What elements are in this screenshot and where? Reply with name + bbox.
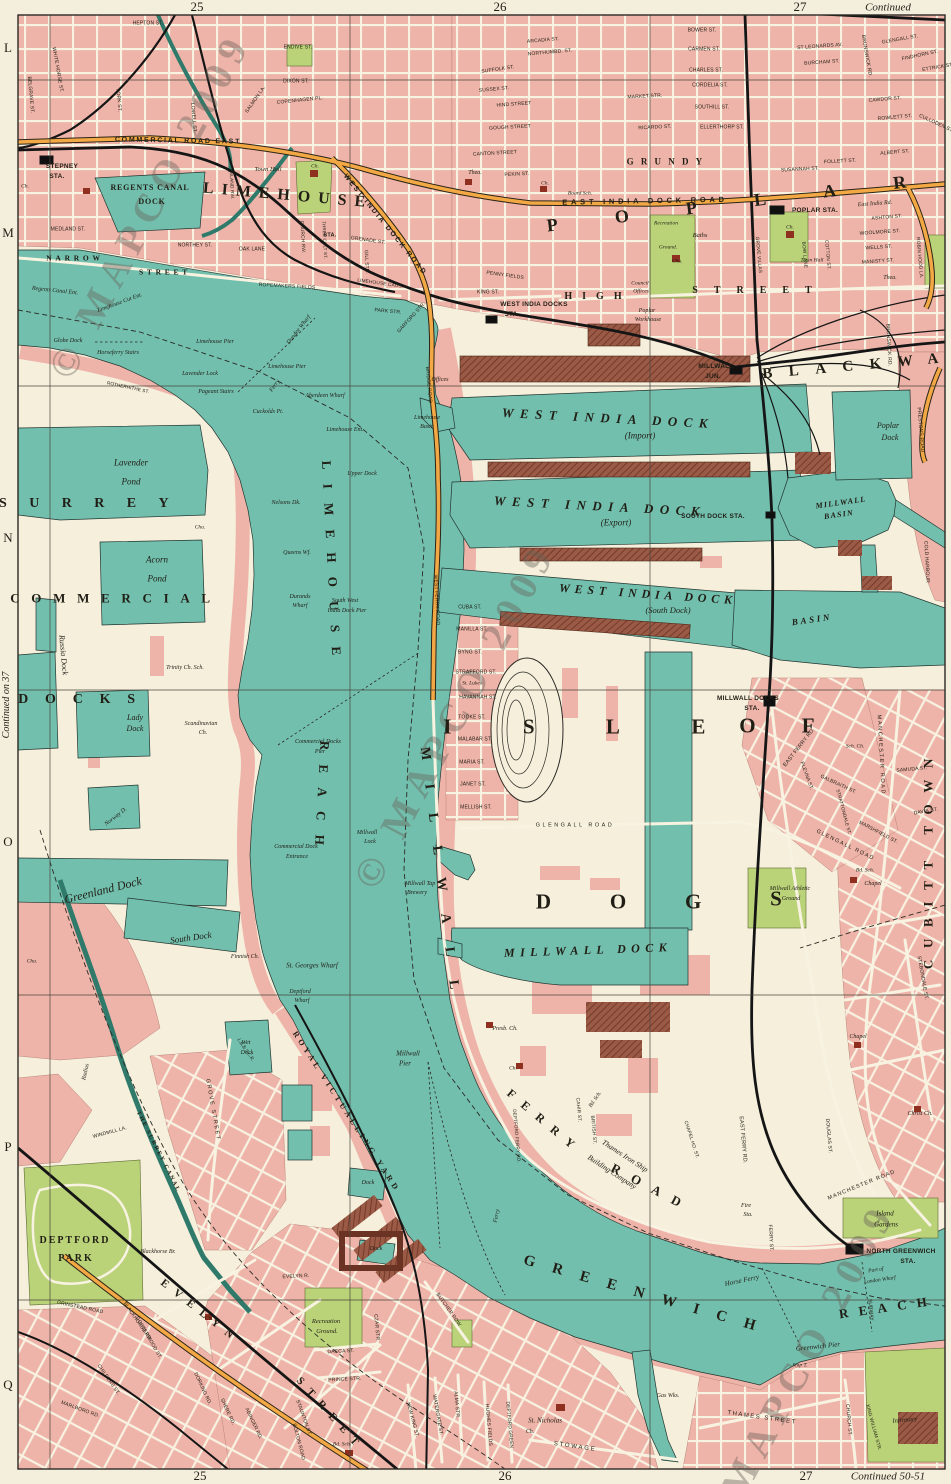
map-label: MANILLA ST. — [456, 628, 487, 633]
map-label: Nelsons Dk. — [272, 500, 301, 506]
map-label: Bd. Sch. — [333, 1442, 351, 1448]
map-label: Limehouse Pier — [196, 339, 234, 345]
map-label: Lock — [364, 839, 376, 845]
map-label: Commercial Dock — [274, 844, 318, 850]
poplar-dock-label: Poplar — [877, 422, 899, 430]
map-label: CZAR STR. — [372, 1314, 379, 1342]
map-label: HAVANNAH ST. — [459, 696, 496, 701]
map-label: Pond — [122, 478, 141, 487]
map-label: JUN. — [705, 374, 721, 381]
map-label: STA. — [504, 312, 519, 319]
map-label: Ch. — [541, 181, 549, 187]
district-cubitt-town: CUBITT TOWN — [922, 747, 935, 969]
grid-col-26-top: 26 — [494, 0, 507, 15]
map-label: Chapel — [849, 1034, 866, 1040]
west-india-docks-station: WEST INDIA DOCKS — [500, 302, 567, 309]
map-label: Commercial Docks — [295, 739, 341, 745]
map-label: ISLAND RW. — [227, 170, 233, 199]
map-label: St. Georges Wharf — [286, 963, 338, 970]
district-dogs: DOG — [536, 892, 760, 913]
map-label: (South Dock) — [645, 606, 690, 615]
grid-col-27-top: 27 — [794, 0, 807, 15]
map-label: BYNG ST. — [458, 651, 482, 656]
map-label: DOCK — [138, 198, 165, 206]
map-label: India Dock Pier — [328, 608, 367, 614]
map-label: Dock — [882, 434, 899, 442]
island-gardens-label: Island — [876, 1211, 894, 1218]
map-label: Pond — [148, 575, 167, 584]
map-label: Christ Ch. — [907, 1111, 932, 1117]
map-label: (Import) — [625, 432, 656, 441]
map-label: St. Lukes — [462, 681, 482, 687]
map-sheet: 252627Continued252627Continued 50-51LMNO… — [0, 0, 951, 1484]
map-label: Cuckolds Pt. — [253, 409, 284, 415]
map-label: Ch. — [509, 1066, 517, 1072]
grid-row-l: L — [4, 40, 12, 56]
map-label: COLD HARBOUR — [922, 541, 929, 583]
map-label: Thea. — [468, 170, 482, 176]
map-label: Sch. Ch. — [846, 744, 865, 750]
map-label: South West — [332, 598, 358, 604]
map-label: STRAFFORD ST. — [455, 671, 496, 676]
map-label: Finnish Ch. — [231, 954, 259, 960]
deptford-park-label-2: PARK — [58, 1254, 94, 1264]
road-high-street-2: STREET — [692, 286, 827, 296]
south-dock-station: SOUTH DOCK STA. — [681, 514, 745, 521]
map-label: BOWER ST. — [688, 29, 717, 34]
district-commercial: COMMERCIAL — [10, 592, 222, 605]
lavender-pond-label: Lavender — [114, 459, 148, 468]
map-label: Wharf — [295, 998, 310, 1004]
map-label: Pier — [399, 1061, 411, 1068]
map-label: JANET ST. — [460, 783, 486, 788]
map-label: CHARLES ST. — [689, 69, 723, 74]
continued-left: Continued on 37 — [2, 672, 12, 739]
map-label: Ch. — [311, 164, 319, 170]
map-label: Ship T. — [792, 1363, 807, 1369]
map-label: DIXON ST. — [283, 80, 309, 85]
map-label: Fire — [741, 1203, 751, 1209]
map-label: Bd. Sch. — [856, 868, 874, 874]
grid-col-25-top: 25 — [191, 0, 204, 15]
stepney-station: STEPNEY — [46, 164, 78, 171]
map-label: HEPTON ST. — [133, 22, 164, 27]
map-label: Dock — [127, 725, 144, 733]
map-label: Aberdeen Wharf — [305, 393, 344, 399]
map-label: Town Hall — [254, 167, 281, 174]
map-label: Pageant Stairs — [198, 389, 234, 395]
map-label: CHURCH RW. — [298, 221, 304, 254]
map-label: ENDIVE ST. — [284, 46, 313, 51]
russia-dock — [36, 598, 56, 652]
millwall-pier-label: Millwall — [396, 1051, 420, 1058]
lady-dock-label: Lady — [127, 714, 143, 722]
map-label: MARIA ST. — [459, 761, 485, 766]
map-label: YORK ST. — [114, 88, 121, 112]
map-label: Ch. — [205, 1316, 213, 1322]
map-label: SOUTHILL ST. — [695, 106, 730, 111]
district-of: OF — [739, 716, 861, 737]
map-label: STA. — [744, 706, 759, 713]
map-label: MALABAR ST. — [458, 738, 492, 743]
map-label: Queens Wf. — [283, 550, 311, 556]
map-label: OAK LANE — [239, 248, 265, 253]
map-label: ELLERTHORP ST. — [700, 126, 744, 131]
map-label: Ch. — [786, 225, 794, 231]
map-label: (Export) — [601, 519, 632, 528]
road-high-street: HIGH — [564, 292, 631, 302]
north-greenwich-station: NORTH GREENWICH — [866, 1249, 935, 1256]
norway-dock — [88, 785, 140, 830]
map-label: THREE COLT ST. — [321, 221, 327, 259]
map-label: Ground. — [659, 245, 677, 251]
map-label: Entrance — [286, 854, 308, 860]
grid-row-m: M — [2, 225, 14, 241]
map-label: Millwall — [357, 830, 377, 836]
map-label: Millwall Tap — [405, 881, 436, 887]
map-label: MEDLAND ST. — [51, 228, 86, 233]
district-docks: DOCKS — [18, 693, 152, 707]
map-label: Poplar — [639, 308, 656, 314]
map-label: Upper Dock — [347, 471, 377, 477]
map-label: CUBA ST. — [458, 606, 481, 611]
map-label: Lavender Lock — [182, 371, 218, 377]
grid-col-25-bottom: 25 — [194, 1468, 207, 1484]
map-label: Dock — [362, 1180, 375, 1186]
map-label: TOOKE ST. — [458, 716, 485, 721]
deptford-park-label: DEPTFORD — [40, 1236, 111, 1246]
map-label: Limehouse Pier — [268, 364, 306, 370]
map-label: Chu. — [672, 259, 683, 265]
map-label: Ground — [782, 896, 800, 902]
grid-col-26-bottom: 26 — [499, 1468, 512, 1484]
map-label: BOW LANE — [799, 242, 806, 269]
map-label: Ch. — [199, 730, 208, 736]
map-label: Durands — [289, 594, 310, 600]
regents-canal-dock-label: REGENTS CANAL — [110, 184, 189, 192]
millwall-junction: MILLWALL — [698, 364, 733, 371]
map-label: CAHIR ST. — [574, 1098, 581, 1123]
map-label: KING ST. — [477, 291, 499, 296]
map-label: GILL STR. — [362, 250, 368, 274]
map-label: GLENGALL ROAD — [536, 823, 614, 829]
map-label: Ground. — [316, 1329, 338, 1336]
map-label: Cha. — [195, 525, 206, 531]
map-label: Cha. — [27, 959, 38, 965]
map-label: CARMEN ST. — [688, 48, 720, 53]
map-label: Trinity Ch. Sch. — [166, 665, 204, 671]
map-label: NORTHEY ST. — [178, 244, 213, 249]
map-label: Pier — [315, 749, 325, 755]
continued-bottom: Continued 50-51 — [851, 1472, 925, 1483]
map-label: ALMA STR. — [452, 1391, 459, 1419]
poplar-dock — [832, 390, 912, 480]
map-label: BRUNSWICK RD. — [884, 324, 891, 367]
map-label: Blackhorse Br. — [140, 1249, 175, 1255]
map-label: Brewery — [407, 890, 427, 896]
map-label: Board Sch. — [568, 191, 592, 197]
map-label: Ch. — [526, 1429, 535, 1435]
map-label: Gas Wks. — [657, 1393, 680, 1399]
map-label: Sta. — [743, 1212, 752, 1218]
map-label: Globe Dock — [54, 338, 83, 344]
map-label: Wharf — [293, 603, 308, 609]
map-label: Limehouse Ent. — [326, 427, 363, 433]
grid-row-o: O — [3, 834, 12, 850]
grid-row-q: Q — [3, 1377, 12, 1393]
map-label: STA. — [900, 1259, 915, 1266]
map-label: Gardens — [874, 1222, 898, 1229]
map-label: Offices — [432, 377, 449, 383]
recreation-ground-label: Recreation — [312, 1319, 340, 1326]
millwall-dock — [645, 652, 692, 930]
map-label: Workhouse — [635, 317, 661, 323]
map-label: Thea. — [883, 275, 897, 281]
continued-top: Continued — [865, 3, 911, 14]
grid-col-27-bottom: 27 — [800, 1468, 813, 1484]
millwall-athletic-label: Millwall Athletic — [770, 886, 810, 892]
map-label: Limehouse — [414, 415, 440, 421]
district-surrey: SURREY — [0, 497, 191, 511]
map-label: Scandinavian — [185, 721, 218, 727]
map-label: Deptford — [289, 989, 310, 995]
map-label: STA. — [49, 174, 64, 181]
map-label: SUBWAY — [867, 1299, 874, 1321]
map-label: Horseferry Stairs — [97, 350, 139, 356]
wet-dock — [225, 1020, 272, 1075]
map-label: Council — [631, 281, 648, 287]
map-label: Dock — [370, 1246, 383, 1252]
map-label: Offices — [633, 289, 649, 295]
map-label: Presb. Ch. — [492, 1026, 517, 1032]
map-label: CORDELIA ST. — [692, 84, 728, 89]
map-label: Ch. — [21, 184, 29, 190]
poplar-station: POPLAR STA. — [792, 208, 838, 215]
millwall-docks-station: MILLWALL DOCKS — [717, 696, 779, 703]
grid-row-p: P — [4, 1139, 11, 1155]
district-isle: ISLE — [443, 717, 776, 738]
road-narrow: NARROW — [46, 254, 104, 262]
map-label: Basin — [420, 424, 434, 430]
map-label: MELLISH ST. — [460, 806, 492, 811]
map-label: Baths — [693, 233, 708, 240]
acorn-pond-label: Acorn — [146, 556, 168, 565]
map-label: Recreation — [654, 221, 678, 227]
map-label: St. Nicholas — [528, 1418, 562, 1425]
road-narrow-2: STREET — [139, 268, 191, 276]
grid-row-n: N — [3, 530, 12, 546]
road-grundy: GRUNDY — [627, 158, 710, 167]
map-label: Chapel — [864, 881, 881, 887]
map-label: FERRY ST. — [767, 1225, 773, 1252]
